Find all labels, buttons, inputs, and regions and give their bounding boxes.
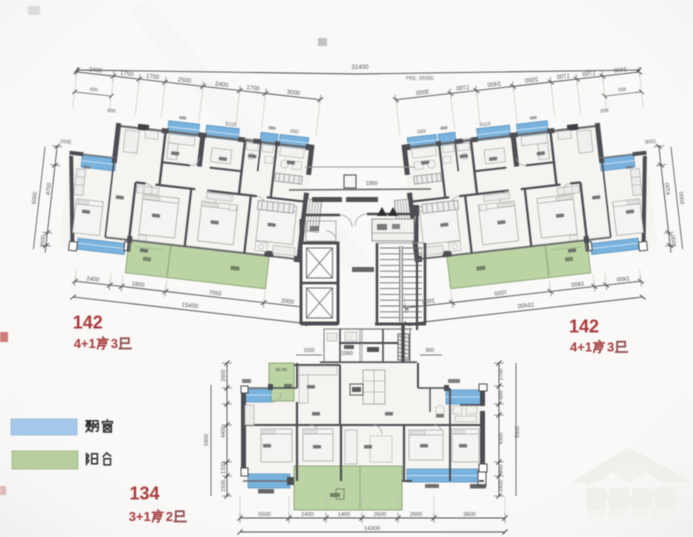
svg-text:3: 3 xyxy=(111,336,118,351)
svg-text:142: 142 xyxy=(73,312,103,332)
svg-text:800: 800 xyxy=(426,348,435,354)
svg-text:2400: 2400 xyxy=(301,512,313,518)
svg-text:5900: 5900 xyxy=(204,434,210,446)
svg-text:2600: 2600 xyxy=(374,512,386,518)
svg-text:1500: 1500 xyxy=(303,348,314,354)
svg-text:PRE. 5B98E: PRE. 5B98E xyxy=(406,76,435,82)
svg-text:1420: 1420 xyxy=(498,480,504,492)
svg-text:600: 600 xyxy=(498,391,504,400)
svg-text:5500: 5500 xyxy=(258,512,270,518)
svg-text:14300: 14300 xyxy=(364,526,380,532)
svg-text:800: 800 xyxy=(498,465,504,474)
svg-text:4+1: 4+1 xyxy=(570,340,592,355)
svg-text:4400: 4400 xyxy=(221,426,227,438)
svg-text:15.00: 15.00 xyxy=(275,367,287,372)
svg-text:1700: 1700 xyxy=(498,369,504,381)
svg-text:2600: 2600 xyxy=(221,370,227,382)
svg-text:3: 3 xyxy=(607,340,614,355)
svg-text:134: 134 xyxy=(129,484,159,504)
svg-text:2600: 2600 xyxy=(410,512,422,518)
svg-text:3600: 3600 xyxy=(463,512,475,518)
svg-text:1500: 1500 xyxy=(221,480,227,492)
svg-text:3+1: 3+1 xyxy=(129,509,151,524)
svg-text:4+1: 4+1 xyxy=(74,336,96,351)
svg-text:142: 142 xyxy=(569,317,599,337)
svg-text:1950: 1950 xyxy=(366,181,378,187)
svg-text:1320: 1320 xyxy=(221,462,227,474)
svg-text:Good Room: Good Room xyxy=(588,508,672,520)
svg-text:5300: 5300 xyxy=(515,426,521,438)
svg-text:1550: 1550 xyxy=(341,351,353,357)
svg-text:4300: 4300 xyxy=(498,433,504,445)
svg-text:1400: 1400 xyxy=(338,512,350,518)
svg-text:31400: 31400 xyxy=(351,64,369,71)
svg-text:2: 2 xyxy=(166,509,173,524)
